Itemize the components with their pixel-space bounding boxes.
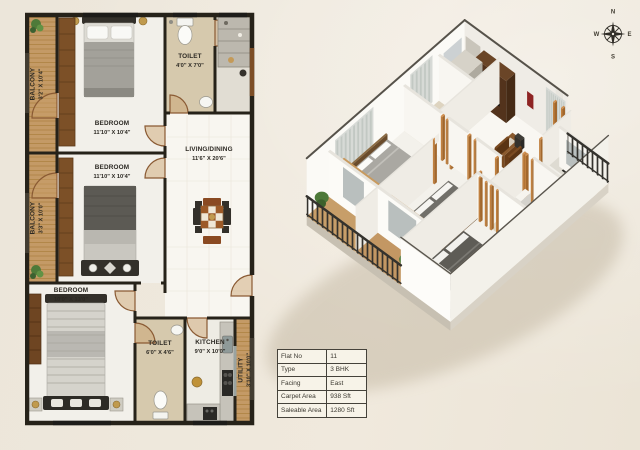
- brochure-page: BALCONY 3'2" X 10'4" BEDROOM 11'10" X 10…: [0, 0, 640, 450]
- row-value: 1280 Sft: [327, 404, 366, 417]
- svg-text:UTILITY: UTILITY: [238, 357, 245, 383]
- svg-text:11'10" X 10'4": 11'10" X 10'4": [94, 174, 131, 180]
- svg-text:LIVING/DINING: LIVING/DINING: [185, 146, 232, 153]
- wardrobe-top: [59, 18, 75, 146]
- table-row: Carpet Area 938 Sft: [278, 391, 366, 405]
- svg-text:11'6" X 20'6": 11'6" X 20'6": [192, 156, 226, 162]
- svg-text:KITCHEN: KITCHEN: [195, 339, 225, 346]
- flat-info-table: Flat No 11 Type 3 BHK Facing East Carpet…: [277, 349, 367, 418]
- svg-text:TOILET: TOILET: [178, 53, 202, 60]
- wardrobe-middle: [59, 158, 73, 276]
- row-label: Type: [278, 364, 327, 377]
- svg-text:10'0" X 13'0": 10'0" X 13'0": [54, 297, 88, 303]
- svg-text:9'0" X 10'0": 9'0" X 10'0": [195, 349, 226, 355]
- row-value: 3 BHK: [327, 364, 366, 377]
- svg-text:3'2" X 10'4": 3'2" X 10'4": [39, 68, 45, 99]
- svg-text:BEDROOM: BEDROOM: [95, 164, 129, 171]
- row-value: East: [327, 377, 366, 390]
- row-label: Saleable Area: [278, 404, 327, 417]
- row-label: Flat No: [278, 350, 327, 363]
- compass-s: S: [611, 55, 615, 61]
- table-row: Saleable Area 1280 Sft: [278, 404, 366, 417]
- row-value: 11: [327, 350, 366, 363]
- compass-rose: N E S W: [593, 6, 633, 60]
- svg-text:4'0" X 7'0": 4'0" X 7'0": [176, 63, 204, 69]
- svg-text:3'3" X 10'0": 3'3" X 10'0": [39, 202, 45, 233]
- svg-text:6'0" X 4'6": 6'0" X 4'6": [146, 350, 174, 356]
- wardrobe-bottom: [29, 294, 41, 364]
- row-label: Facing: [278, 377, 327, 390]
- svg-text:3'10" X 10'0": 3'10" X 10'0": [247, 353, 253, 387]
- svg-text:BEDROOM: BEDROOM: [95, 120, 129, 127]
- svg-text:TOILET: TOILET: [148, 340, 172, 347]
- svg-text:11'10" X 10'4": 11'10" X 10'4": [94, 130, 131, 136]
- svg-text:BEDROOM: BEDROOM: [54, 287, 88, 294]
- svg-text:BALCONY: BALCONY: [30, 201, 37, 234]
- compass-w: W: [594, 32, 600, 38]
- row-value: 938 Sft: [327, 391, 366, 404]
- bed-middle: [81, 186, 139, 276]
- table-row: Type 3 BHK: [278, 364, 366, 378]
- compass-e: E: [627, 32, 631, 38]
- 3d-render: [307, 20, 609, 331]
- svg-text:BALCONY: BALCONY: [30, 67, 37, 100]
- table-row: Flat No 11: [278, 350, 366, 364]
- table-row: Facing East: [278, 377, 366, 391]
- compass-n: N: [611, 10, 615, 16]
- row-label: Carpet Area: [278, 391, 327, 404]
- 2d-floor-plan: BALCONY 3'2" X 10'4" BEDROOM 11'10" X 10…: [25, 8, 257, 440]
